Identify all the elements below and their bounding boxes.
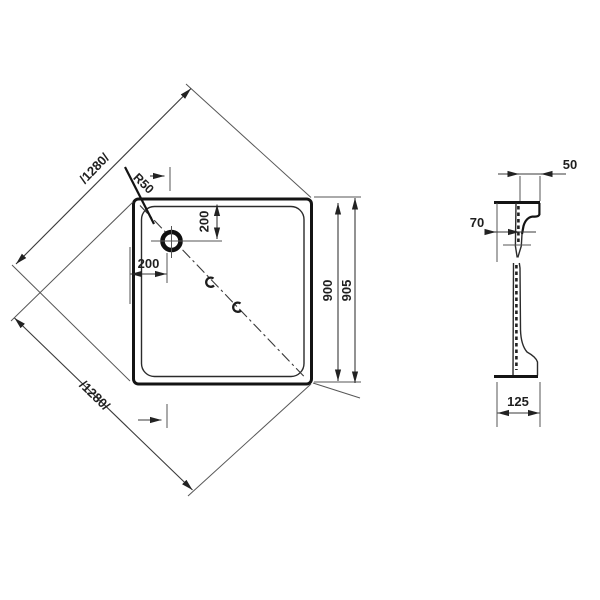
diag-top-ext-from-corner (186, 84, 311, 198)
drain-offset-left-label: 200 (138, 256, 160, 271)
corner-radius-label: R50 (130, 170, 156, 196)
section-lower-wall-left (513, 263, 514, 376)
plan-view: R50 200 200 900 905 /1280/ /1280/ (11, 84, 361, 496)
rim-inset-label: 70 (470, 215, 484, 230)
section-lower-wall-right (519, 263, 537, 376)
drain-diagonal-centerline (140, 206, 305, 378)
overall-size-label: 905 (339, 280, 354, 302)
centerline-hook-icon (206, 278, 214, 287)
section-upper-wall-right (518, 234, 522, 258)
centerline-hook-icon (233, 303, 241, 312)
diag-bottom-ext-from-corner2 (188, 384, 311, 496)
dim-905-ext-oblique (313, 383, 360, 398)
section-view: 50 70 125 (470, 157, 577, 427)
diag-top-ext-from-corner2 (12, 265, 130, 381)
outer-size-label: 900 (320, 280, 335, 302)
base-depth-label: 125 (507, 394, 529, 409)
diag-bottom-ext-from-corner (11, 202, 133, 321)
section-rim-lip (522, 203, 539, 234)
section-upper-wall-left (515, 203, 517, 258)
rim-width-label: 50 (563, 157, 577, 172)
technical-drawing: R50 200 200 900 905 /1280/ /1280/ (0, 0, 600, 600)
drain-offset-top-label: 200 (196, 211, 211, 233)
diagonal-top-label: /1280/ (76, 150, 112, 187)
drawing-sheet: R50 200 200 900 905 /1280/ /1280/ (0, 0, 600, 600)
